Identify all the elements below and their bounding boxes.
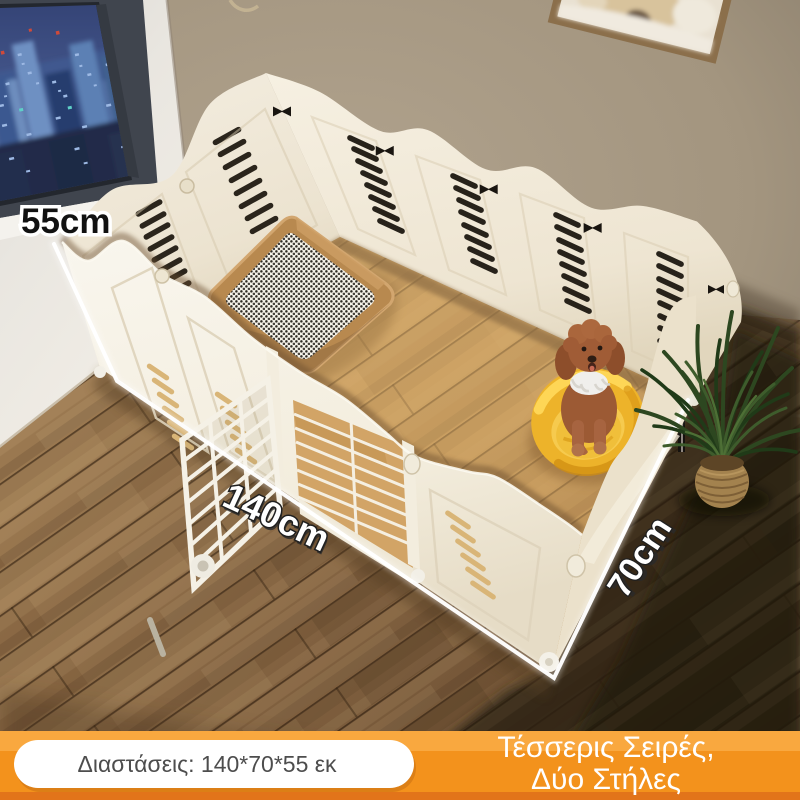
svg-text:Δύο Στήλες: Δύο Στήλες <box>531 763 681 796</box>
svg-text:55cm: 55cm <box>21 202 111 241</box>
svg-text:Τέσσερις Σειρές,: Τέσσερις Σειρές, <box>497 731 714 764</box>
svg-text:Διαστάσεις: 140*70*55 εκ: Διαστάσεις: 140*70*55 εκ <box>77 751 337 777</box>
